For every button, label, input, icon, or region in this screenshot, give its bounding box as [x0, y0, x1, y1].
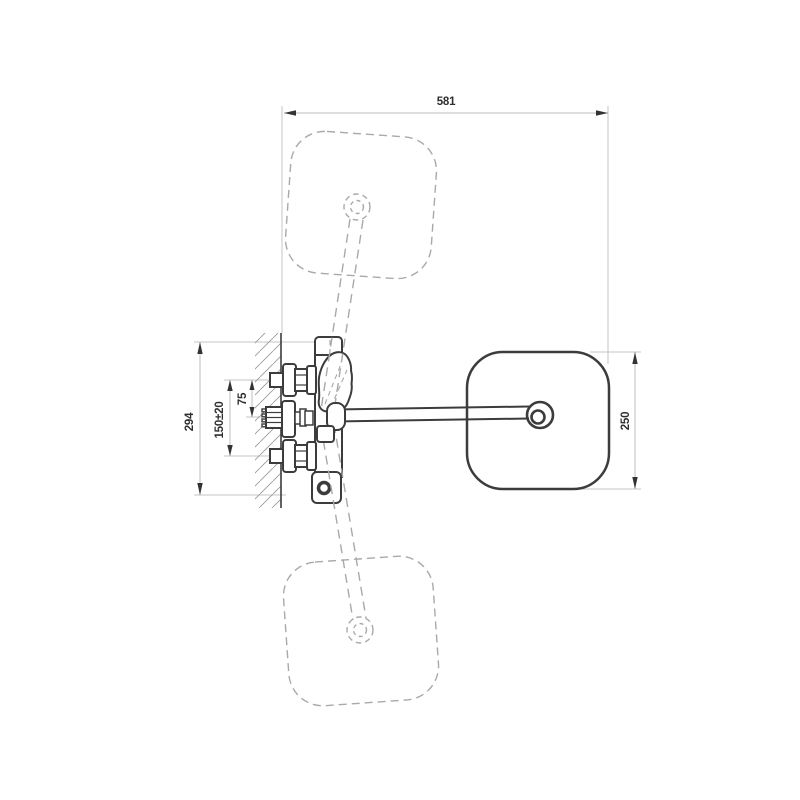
dim-label-connection-spacing: 150±20	[214, 401, 226, 438]
dimension-total-width: 581	[284, 96, 608, 116]
dimension-head-width: 250	[620, 352, 638, 489]
dim-label-head-width: 250	[620, 412, 632, 431]
dimension-connection-spacing: 150±20	[214, 380, 233, 456]
shower-head-solid	[467, 352, 609, 489]
mixer-tap-dimension-diagram: 581 294 150±20 75 250	[0, 0, 800, 800]
mounting-hole	[319, 483, 330, 494]
dim-label-wall-height: 294	[184, 412, 196, 431]
spout-escutcheon	[282, 401, 295, 437]
dimension-spout-offset: 75	[237, 380, 255, 417]
shower-head-plate	[467, 352, 609, 489]
dim-label-total-width: 581	[437, 96, 456, 108]
elbow-lock-block	[317, 426, 334, 442]
technical-drawing-page: 581 294 150±20 75 250	[0, 0, 800, 800]
shower-arm	[317, 402, 553, 442]
arm-head-joint-inner	[532, 411, 545, 424]
dimension-wall-height: 294	[184, 342, 203, 495]
dim-label-spout-offset: 75	[237, 392, 249, 405]
